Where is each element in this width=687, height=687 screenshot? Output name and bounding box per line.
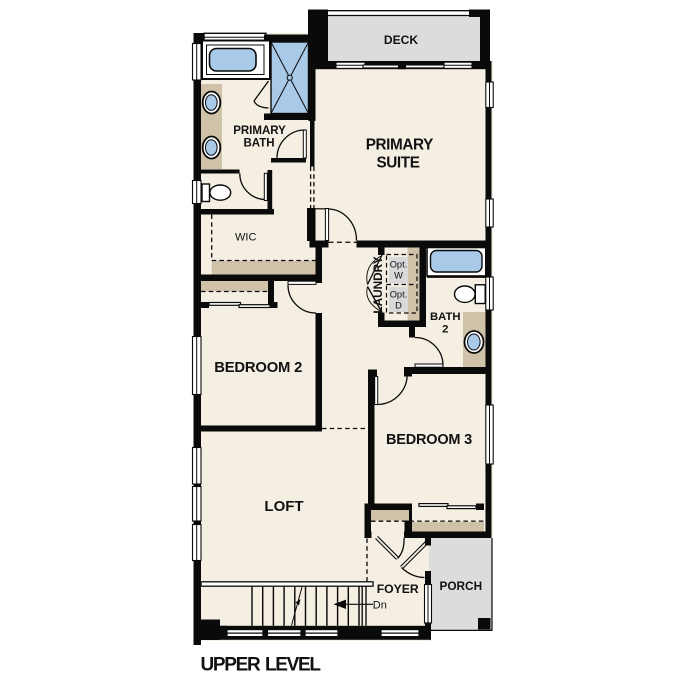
svg-text:LAUNDRY: LAUNDRY (371, 256, 385, 313)
svg-text:W: W (394, 271, 403, 281)
svg-text:WIC: WIC (235, 232, 256, 244)
svg-text:BATH: BATH (243, 137, 274, 149)
svg-text:DECK: DECK (384, 33, 419, 47)
svg-text:PRIMARY: PRIMARY (233, 125, 286, 137)
svg-text:FOYER: FOYER (377, 582, 419, 596)
svg-text:Opt.: Opt. (390, 290, 408, 300)
svg-text:BEDROOM 3: BEDROOM 3 (386, 432, 472, 448)
svg-text:BEDROOM 2: BEDROOM 2 (214, 360, 302, 376)
svg-text:Dn: Dn (373, 600, 387, 612)
svg-text:LOFT: LOFT (264, 498, 303, 515)
svg-text:SUITE: SUITE (376, 154, 419, 171)
svg-text:PORCH: PORCH (439, 579, 482, 593)
svg-text:BATH: BATH (430, 311, 461, 323)
svg-text:PRIMARY: PRIMARY (366, 137, 433, 154)
svg-text:2: 2 (442, 324, 448, 336)
svg-text:Opt.: Opt. (390, 260, 408, 270)
svg-text:UPPER LEVEL: UPPER LEVEL (201, 655, 322, 676)
svg-text:D: D (395, 301, 402, 311)
